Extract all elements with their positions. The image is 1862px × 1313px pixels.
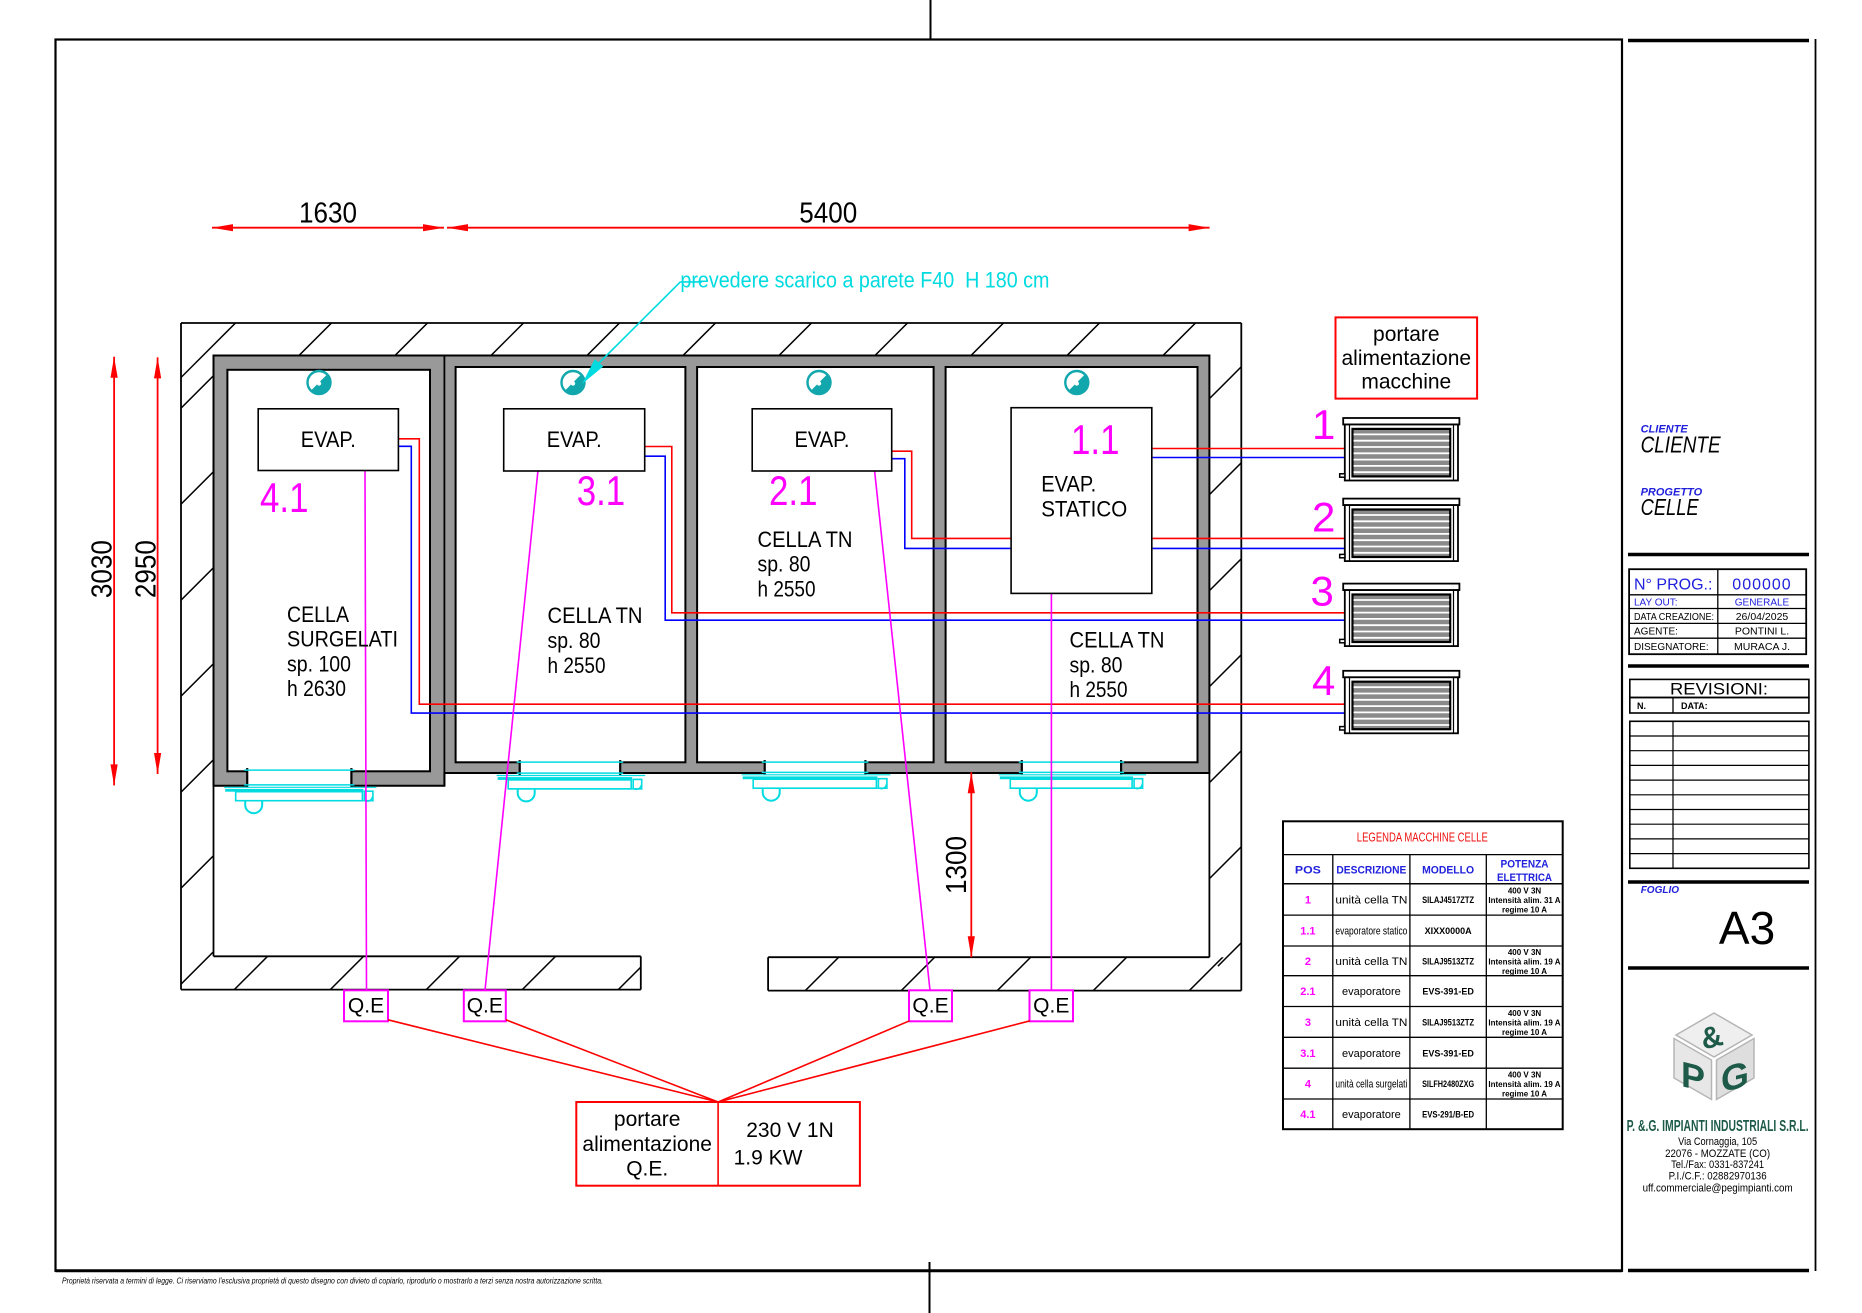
svg-text:MODELLO: MODELLO — [1422, 865, 1474, 877]
svg-text:GENERALE: GENERALE — [1735, 597, 1790, 608]
svg-text:EVS-291/B-ED: EVS-291/B-ED — [1422, 1110, 1474, 1120]
svg-text:400 V 3N: 400 V 3N — [1508, 948, 1542, 957]
svg-text:POS: POS — [1295, 865, 1321, 877]
svg-text:400 V 3N: 400 V 3N — [1508, 1071, 1542, 1080]
svg-text:P. &.G. IMPIANTI INDUSTRIALI S: P. &.G. IMPIANTI INDUSTRIALI S.R.L. — [1627, 1118, 1809, 1135]
svg-text:3030: 3030 — [86, 540, 118, 598]
svg-text:h 2550: h 2550 — [758, 576, 816, 601]
svg-text:2: 2 — [1305, 956, 1311, 968]
svg-text:CELLA: CELLA — [287, 602, 349, 627]
svg-text:LAY OUT:: LAY OUT: — [1634, 597, 1678, 608]
svg-text:1300: 1300 — [941, 836, 973, 894]
svg-text:Q.E: Q.E — [348, 995, 384, 1018]
svg-text:Q.E: Q.E — [912, 995, 948, 1018]
svg-text:CLIENTE: CLIENTE — [1641, 432, 1722, 458]
svg-text:P.I./C.F.: 02882970136: P.I./C.F.: 02882970136 — [1669, 1171, 1767, 1183]
svg-text:4: 4 — [1312, 657, 1335, 704]
svg-text:Q.E: Q.E — [467, 995, 503, 1018]
svg-text:000000: 000000 — [1732, 577, 1791, 594]
svg-text:26/04/2025: 26/04/2025 — [1736, 611, 1789, 623]
svg-text:Proprietà riservata a termini: Proprietà riservata a termini di legge. … — [62, 1276, 603, 1286]
svg-text:unità cella TN: unità cella TN — [1335, 956, 1407, 968]
svg-text:STATICO: STATICO — [1041, 496, 1127, 521]
svg-text:regime 10 A: regime 10 A — [1502, 1090, 1547, 1099]
svg-text:MURACA J.: MURACA J. — [1734, 641, 1790, 653]
svg-text:h 2550: h 2550 — [1070, 677, 1128, 702]
svg-text:regime 10 A: regime 10 A — [1502, 967, 1547, 976]
svg-text:22076 - MOZZATE (CO): 22076 - MOZZATE (CO) — [1665, 1148, 1770, 1160]
svg-text:SILAJ4517ZTZ: SILAJ4517ZTZ — [1422, 895, 1474, 905]
svg-text:4.1: 4.1 — [1300, 1109, 1315, 1121]
svg-text:3.1: 3.1 — [577, 467, 626, 514]
svg-text:POTENZA: POTENZA — [1501, 859, 1549, 871]
svg-text:2.1: 2.1 — [769, 467, 818, 514]
svg-text:regime 10 A: regime 10 A — [1502, 1028, 1547, 1037]
svg-text:CELLA TN: CELLA TN — [1070, 628, 1165, 653]
svg-text:SURGELATI: SURGELATI — [287, 627, 398, 652]
svg-text:N.: N. — [1637, 701, 1646, 711]
svg-text:alimentazione: alimentazione — [1342, 347, 1472, 370]
svg-text:230 V 1N: 230 V 1N — [746, 1119, 834, 1142]
svg-text:PONTINI L.: PONTINI L. — [1735, 626, 1789, 638]
svg-text:portare: portare — [1373, 323, 1440, 346]
svg-text:Intensità alim. 31 A: Intensità alim. 31 A — [1488, 896, 1560, 905]
svg-text:CELLA TN: CELLA TN — [758, 527, 853, 552]
svg-text:REVISIONI:: REVISIONI: — [1670, 680, 1768, 699]
svg-text:EVAP.: EVAP. — [547, 427, 602, 452]
svg-text:A3: A3 — [1719, 902, 1775, 954]
svg-text:SILAJ9513ZTZ: SILAJ9513ZTZ — [1422, 956, 1474, 966]
svg-text:Intensità alim. 19 A: Intensità alim. 19 A — [1488, 1080, 1560, 1089]
svg-text:unità cella surgelati: unità cella surgelati — [1335, 1079, 1407, 1091]
svg-text:1: 1 — [1305, 894, 1311, 906]
svg-text:unità cella TN: unità cella TN — [1335, 1017, 1407, 1029]
svg-text:G: G — [1721, 1053, 1749, 1100]
svg-text:3: 3 — [1311, 567, 1334, 614]
svg-text:4: 4 — [1305, 1079, 1312, 1091]
svg-text:Q.E: Q.E — [1033, 995, 1069, 1018]
svg-text:evaporatore statico: evaporatore statico — [1335, 926, 1407, 938]
svg-text:sp. 80: sp. 80 — [548, 628, 601, 653]
svg-text:Intensità alim. 19 A: Intensità alim. 19 A — [1488, 1018, 1560, 1027]
svg-text:sp. 80: sp. 80 — [1070, 652, 1123, 677]
svg-text:ELETTRICA: ELETTRICA — [1497, 872, 1552, 884]
svg-text:3: 3 — [1305, 1017, 1311, 1029]
svg-text:2: 2 — [1312, 493, 1335, 540]
svg-text:4.1: 4.1 — [260, 474, 309, 521]
svg-text:uff.commerciale@pegimpianti.co: uff.commerciale@pegimpianti.com — [1643, 1182, 1793, 1194]
svg-text:SILFH2480ZXG: SILFH2480ZXG — [1422, 1079, 1474, 1089]
svg-text:portare: portare — [614, 1108, 681, 1131]
svg-text:DATA CREAZIONE:: DATA CREAZIONE: — [1634, 612, 1714, 623]
svg-text:3.1: 3.1 — [1300, 1048, 1315, 1060]
svg-text:LEGENDA MACCHINE CELLE: LEGENDA MACCHINE CELLE — [1357, 830, 1488, 845]
svg-text:unità cella TN: unità cella TN — [1335, 894, 1407, 906]
svg-text:N° PROG.:: N° PROG.: — [1634, 577, 1712, 594]
svg-text:CELLE: CELLE — [1641, 494, 1700, 520]
svg-text:FOGLIO: FOGLIO — [1641, 885, 1680, 896]
svg-text:EVS-391-ED: EVS-391-ED — [1422, 987, 1474, 997]
svg-text:P: P — [1681, 1054, 1705, 1100]
svg-text:AGENTE:: AGENTE: — [1634, 627, 1678, 638]
svg-text:400 V 3N: 400 V 3N — [1508, 1009, 1542, 1018]
svg-text:2950: 2950 — [130, 540, 162, 598]
svg-text:Intensità alim. 19 A: Intensità alim. 19 A — [1488, 957, 1560, 966]
svg-text:evaporatore: evaporatore — [1342, 1109, 1401, 1121]
svg-text:5400: 5400 — [799, 198, 857, 230]
svg-text:h 2550: h 2550 — [548, 653, 606, 678]
svg-text:SILAJ9513ZTZ: SILAJ9513ZTZ — [1422, 1017, 1474, 1027]
svg-text:400 V 3N: 400 V 3N — [1508, 886, 1542, 895]
svg-text:XIXX0000A: XIXX0000A — [1425, 926, 1473, 936]
svg-text:2.1: 2.1 — [1300, 986, 1315, 998]
svg-text:regime 10 A: regime 10 A — [1502, 905, 1547, 914]
svg-text:EVAP.: EVAP. — [301, 427, 356, 452]
svg-text:CELLA TN: CELLA TN — [548, 603, 643, 628]
svg-text:evaporatore: evaporatore — [1342, 986, 1401, 998]
svg-text:EVS-391-ED: EVS-391-ED — [1422, 1048, 1474, 1058]
svg-text:DESCRIZIONE: DESCRIZIONE — [1336, 865, 1406, 877]
svg-text:1.1: 1.1 — [1071, 416, 1120, 463]
svg-text:1: 1 — [1312, 401, 1335, 448]
svg-text:sp. 80: sp. 80 — [758, 552, 811, 577]
svg-text:1.1: 1.1 — [1300, 926, 1315, 938]
svg-text:1.9 KW: 1.9 KW — [734, 1147, 803, 1170]
svg-text:sp. 100: sp. 100 — [287, 651, 351, 676]
svg-text:EVAP.: EVAP. — [795, 427, 850, 452]
svg-text:Tel./Fax: 0331-837241: Tel./Fax: 0331-837241 — [1671, 1159, 1764, 1171]
svg-text:evaporatore: evaporatore — [1342, 1048, 1401, 1060]
svg-text:DISEGNATORE:: DISEGNATORE: — [1634, 642, 1709, 653]
svg-text:h 2630: h 2630 — [287, 676, 346, 701]
svg-text:DATA:: DATA: — [1681, 701, 1708, 711]
svg-text:prevedere scarico a parete F40: prevedere scarico a parete F40 H 180 cm — [680, 268, 1049, 293]
svg-text:1630: 1630 — [299, 198, 357, 230]
svg-text:Q.E.: Q.E. — [626, 1158, 668, 1181]
svg-text:macchine: macchine — [1361, 371, 1451, 394]
svg-text:alimentazione: alimentazione — [582, 1133, 712, 1156]
svg-text:Via Cornaggia, 105: Via Cornaggia, 105 — [1678, 1136, 1757, 1148]
svg-text:EVAP.: EVAP. — [1041, 472, 1096, 497]
